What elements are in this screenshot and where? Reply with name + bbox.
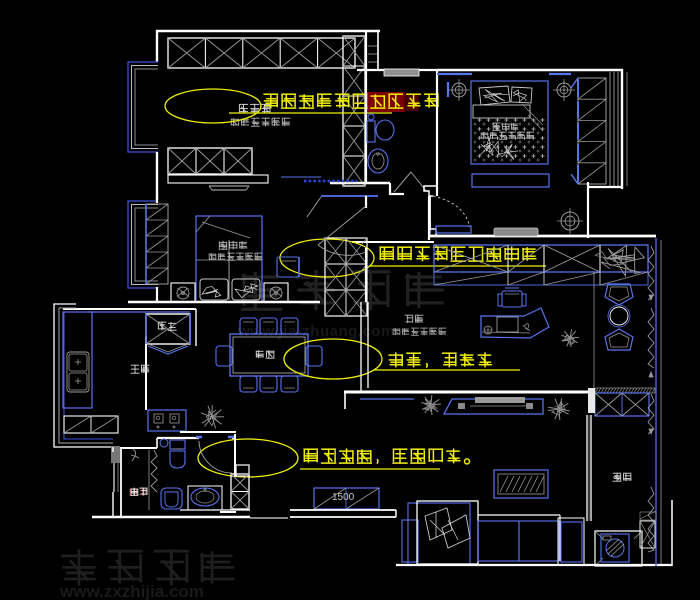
svg-text:1500: 1500 [332,492,355,503]
svg-text:www.zxzhijia.com: www.zxzhijia.com [59,582,204,600]
svg-text:www.jia-zhuang.com: www.jia-zhuang.com [237,323,395,340]
